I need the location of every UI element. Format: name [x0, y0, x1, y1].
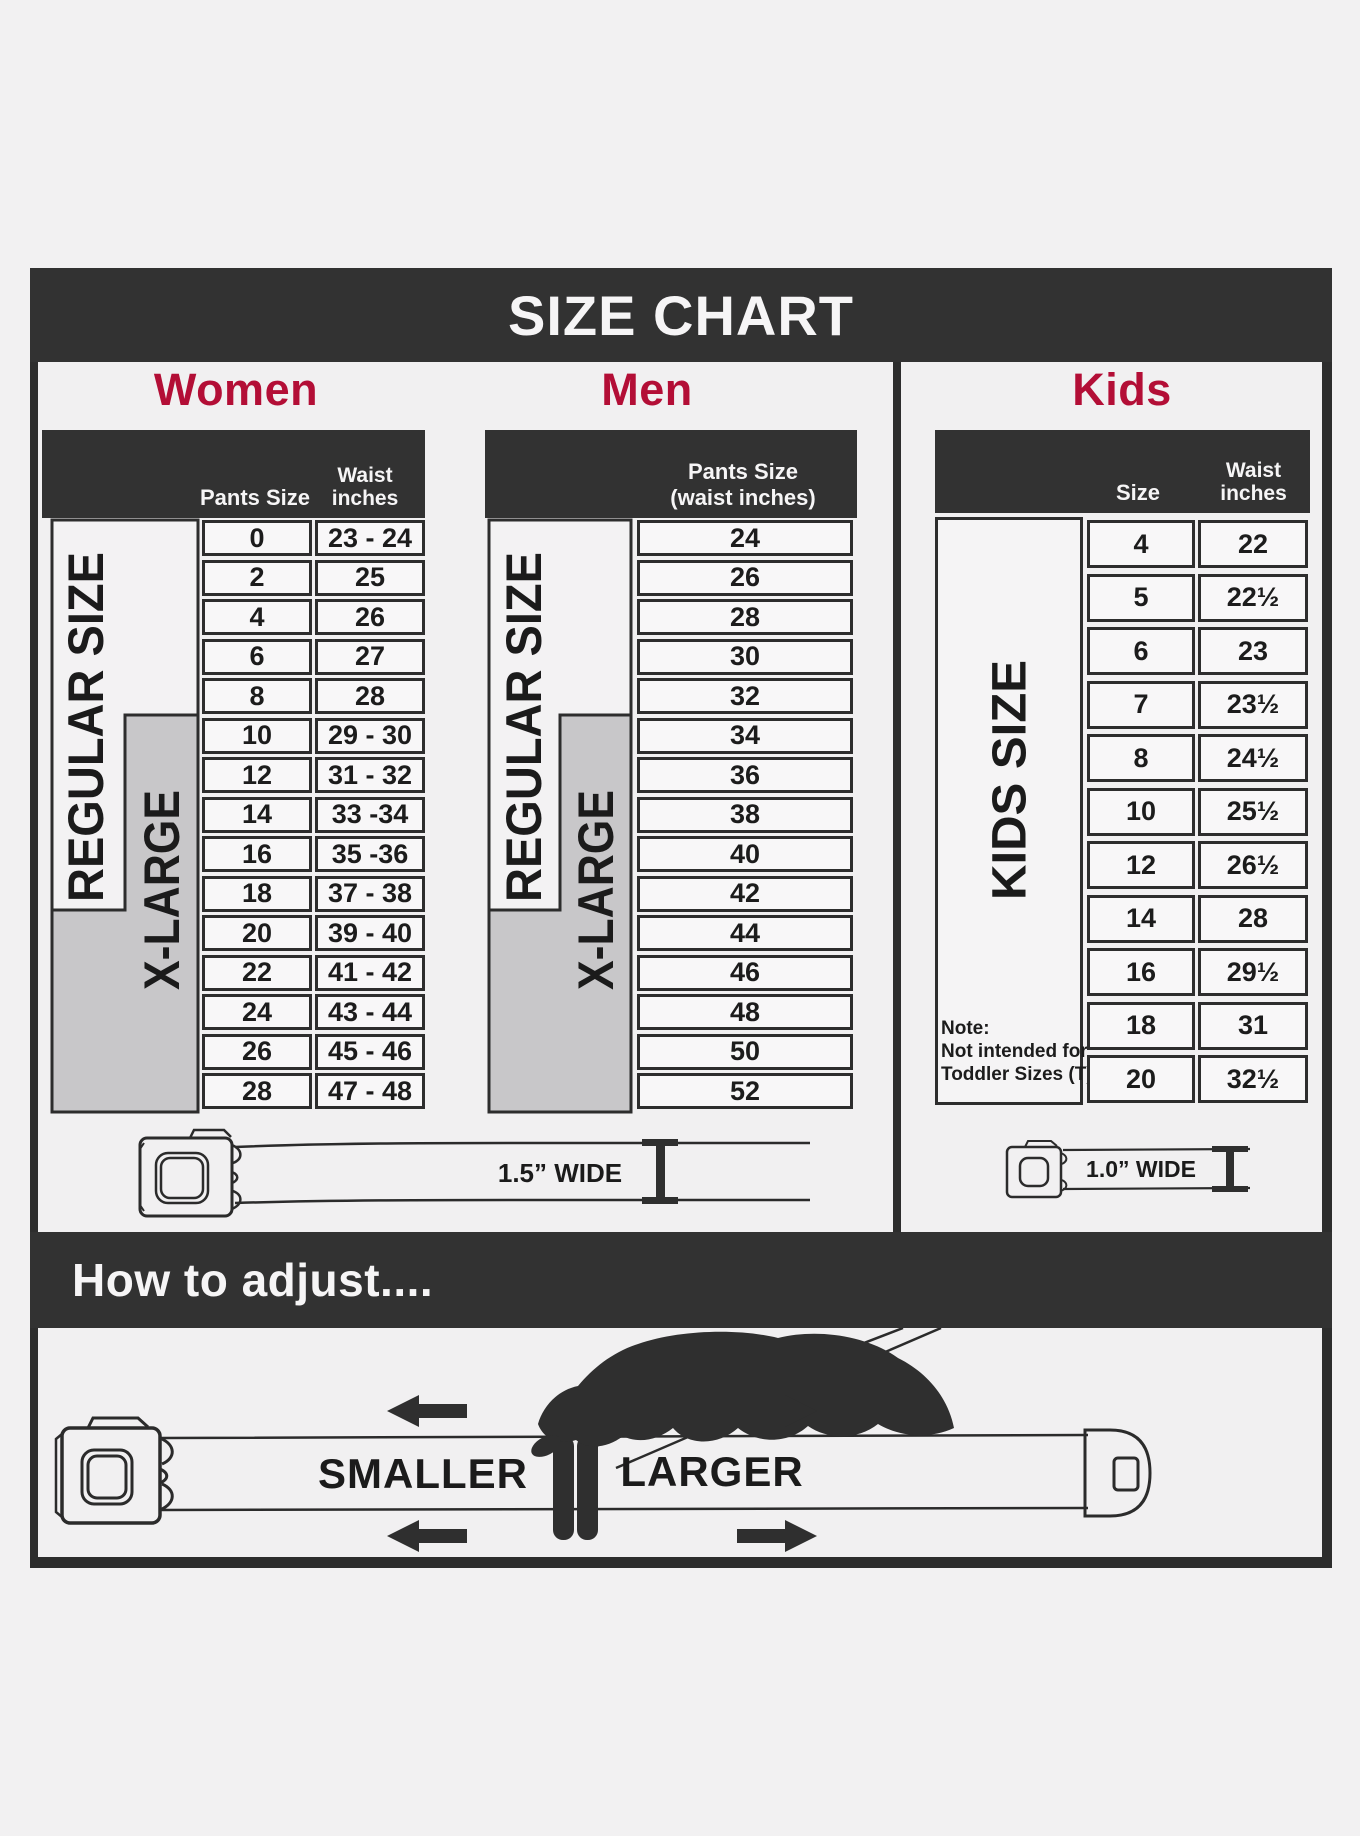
women-col-waist-header: Waistinches — [310, 464, 420, 511]
howto-heading: How to adjust.... — [30, 1253, 433, 1307]
men-xlarge-label: X-LARGE — [568, 790, 624, 990]
pants-size-cell: 48 — [637, 994, 853, 1030]
table-row: 28 — [637, 599, 853, 635]
table-row: 828 — [202, 678, 425, 714]
waist-cell: 35 -36 — [315, 836, 425, 872]
waist-cell: 26 — [315, 599, 425, 635]
table-row: 32 — [637, 678, 853, 714]
pants-size-cell: 14 — [202, 797, 312, 833]
belt-tip-icon — [1085, 1430, 1150, 1516]
width-marker-icon — [1212, 1146, 1248, 1192]
width-marker-icon — [642, 1139, 678, 1204]
buckle-slot — [1020, 1158, 1048, 1186]
pants-size-cell: 20 — [202, 915, 312, 951]
larger-label: LARGER — [620, 1448, 803, 1495]
pants-size-cell: 4 — [202, 599, 312, 635]
belt-strap-top-line — [235, 1143, 810, 1147]
size-cell: 6 — [1087, 627, 1195, 675]
waist-cell: 43 - 44 — [315, 994, 425, 1030]
section-divider — [893, 362, 901, 1232]
pants-size-cell: 36 — [637, 757, 853, 793]
buckle-slot — [161, 1158, 203, 1198]
belt-adjuster — [553, 1436, 598, 1540]
title-bar: SIZE CHART — [30, 268, 1332, 362]
waist-cell: 23 — [1198, 627, 1308, 675]
waist-cell: 31 - 32 — [315, 757, 425, 793]
men-regular-size-label: REGULAR SIZE — [496, 552, 552, 902]
size-cell: 12 — [1087, 841, 1195, 889]
pants-size-cell: 44 — [637, 915, 853, 951]
kids-size-label: KIDS SIZE — [984, 660, 1037, 900]
smaller-label: SMALLER — [318, 1450, 528, 1497]
pants-size-cell: 8 — [202, 678, 312, 714]
table-row: 627 — [202, 639, 425, 675]
women-table-header: Pants Size Waistinches — [42, 430, 425, 518]
waist-cell: 45 - 46 — [315, 1034, 425, 1070]
pants-size-cell: 10 — [202, 718, 312, 754]
pants-size-cell: 2 — [202, 560, 312, 596]
table-row: 1029 - 30 — [202, 718, 425, 754]
adult-belt-illustration: 1.5” WIDE — [130, 1125, 890, 1225]
men-size-category-shapes: REGULAR SIZE X-LARGE — [487, 518, 633, 1115]
table-row: 023 - 24 — [202, 520, 425, 556]
table-row: 48 — [637, 994, 853, 1030]
table-row: 1635 -36 — [202, 836, 425, 872]
size-chart-infographic: SIZE CHART Women Men Kids Pants Size Wai… — [0, 0, 1360, 1836]
arrow-right-icon — [737, 1520, 817, 1552]
pants-size-cell: 0 — [202, 520, 312, 556]
table-row: 44 — [637, 915, 853, 951]
adult-belt-width-label: 1.5” WIDE — [498, 1158, 622, 1188]
table-row: 46 — [637, 955, 853, 991]
frame-border-right — [1322, 362, 1332, 1568]
kids-col-size-header: Size — [1083, 480, 1193, 506]
adjust-illustration: SMALLER LARGER — [38, 1328, 1322, 1557]
size-cell: 16 — [1087, 948, 1195, 996]
belt-strap-bottom-line — [235, 1200, 810, 1203]
belt-buckle-icon — [140, 1138, 232, 1216]
pants-size-cell: 32 — [637, 678, 853, 714]
pants-size-cell: 16 — [202, 836, 312, 872]
pants-size-cell: 26 — [202, 1034, 312, 1070]
table-row: 42 — [637, 876, 853, 912]
women-size-category-shapes: REGULAR SIZE X-LARGE — [42, 518, 200, 1115]
kids-note: Note: Not intended for Toddler Sizes (T) — [941, 1018, 1083, 1086]
women-heading: Women — [126, 364, 346, 416]
men-col-pants-size-header: Pants Size(waist inches) — [633, 459, 853, 511]
table-row: 824½ — [1087, 734, 1308, 782]
table-row: 723½ — [1087, 681, 1308, 729]
kids-table-header: Size Waistinches — [935, 430, 1310, 513]
page-title: SIZE CHART — [508, 283, 854, 348]
pants-size-cell: 18 — [202, 876, 312, 912]
size-cell: 14 — [1087, 895, 1195, 943]
waist-cell: 29 - 30 — [315, 718, 425, 754]
table-row: 1433 -34 — [202, 797, 425, 833]
size-cell: 20 — [1087, 1055, 1195, 1103]
waist-cell: 29½ — [1198, 948, 1308, 996]
table-row: 1226½ — [1087, 841, 1308, 889]
table-row: 2032½ — [1087, 1055, 1308, 1103]
table-row: 1231 - 32 — [202, 757, 425, 793]
waist-cell: 26½ — [1198, 841, 1308, 889]
pants-size-cell: 12 — [202, 757, 312, 793]
table-row: 2039 - 40 — [202, 915, 425, 951]
table-row: 623 — [1087, 627, 1308, 675]
waist-cell: 37 - 38 — [315, 876, 425, 912]
table-row: 34 — [637, 718, 853, 754]
table-row: 422 — [1087, 520, 1308, 568]
waist-cell: 31 — [1198, 1002, 1308, 1050]
men-table-header: Pants Size(waist inches) — [485, 430, 857, 518]
frame-border-left — [30, 362, 38, 1568]
waist-cell: 25 — [315, 560, 425, 596]
waist-cell: 39 - 40 — [315, 915, 425, 951]
pants-size-cell: 46 — [637, 955, 853, 991]
belt-buckle-icon — [1007, 1147, 1061, 1197]
pants-size-cell: 42 — [637, 876, 853, 912]
waist-cell: 22 — [1198, 520, 1308, 568]
waist-cell: 22½ — [1198, 574, 1308, 622]
kids-col-waist-header: Waistinches — [1197, 459, 1310, 506]
table-row: 2443 - 44 — [202, 994, 425, 1030]
women-col-pants-size-header: Pants Size — [198, 485, 312, 511]
men-heading: Men — [537, 364, 757, 416]
pants-size-cell: 26 — [637, 560, 853, 596]
table-row: 40 — [637, 836, 853, 872]
pants-size-cell: 40 — [637, 836, 853, 872]
table-row: 1629½ — [1087, 948, 1308, 996]
waist-cell: 25½ — [1198, 788, 1308, 836]
table-row: 36 — [637, 757, 853, 793]
size-cell: 5 — [1087, 574, 1195, 622]
pants-size-cell: 6 — [202, 639, 312, 675]
kids-size-label-svg: KIDS SIZE — [938, 520, 1080, 1102]
pants-size-cell: 28 — [202, 1073, 312, 1109]
size-cell: 8 — [1087, 734, 1195, 782]
women-xlarge-label: X-LARGE — [134, 790, 190, 990]
pants-size-cell: 30 — [637, 639, 853, 675]
table-row: 50 — [637, 1034, 853, 1070]
kids-size-label-box: KIDS SIZE — [935, 517, 1083, 1105]
waist-cell: 28 — [1198, 895, 1308, 943]
table-row: 1831 — [1087, 1002, 1308, 1050]
buckle-slot — [88, 1456, 126, 1498]
table-row: 2645 - 46 — [202, 1034, 425, 1070]
kids-heading: Kids — [1012, 364, 1232, 416]
waist-cell: 23½ — [1198, 681, 1308, 729]
kids-belt-illustration: 1.0” WIDE — [995, 1135, 1265, 1205]
women-size-rows: 023 - 242254266278281029 - 301231 - 3214… — [202, 520, 425, 1109]
size-cell: 10 — [1087, 788, 1195, 836]
frame-border-bottom — [30, 1557, 1332, 1568]
pants-size-cell: 24 — [637, 520, 853, 556]
belt-tip-slot — [1114, 1458, 1138, 1490]
pants-size-cell: 52 — [637, 1073, 853, 1109]
buckle-strap-hooks — [160, 1438, 172, 1510]
table-row: 24 — [637, 520, 853, 556]
waist-cell: 41 - 42 — [315, 955, 425, 991]
pants-size-cell: 22 — [202, 955, 312, 991]
women-regular-size-label: REGULAR SIZE — [58, 552, 114, 902]
waist-cell: 24½ — [1198, 734, 1308, 782]
table-row: 1837 - 38 — [202, 876, 425, 912]
waist-cell: 33 -34 — [315, 797, 425, 833]
kids-belt-width-label: 1.0” WIDE — [1086, 1156, 1196, 1182]
table-row: 2241 - 42 — [202, 955, 425, 991]
kids-size-rows: 422522½623723½824½1025½1226½14281629½183… — [1087, 520, 1308, 1103]
pants-size-cell: 24 — [202, 994, 312, 1030]
table-row: 2847 - 48 — [202, 1073, 425, 1109]
arrow-left-icon — [387, 1395, 467, 1427]
pants-size-cell: 34 — [637, 718, 853, 754]
table-row: 426 — [202, 599, 425, 635]
pants-size-cell: 38 — [637, 797, 853, 833]
howto-bar: How to adjust.... — [30, 1232, 1332, 1328]
waist-cell: 28 — [315, 678, 425, 714]
men-size-rows: 242628303234363840424446485052 — [637, 520, 853, 1109]
size-cell: 4 — [1087, 520, 1195, 568]
size-cell: 18 — [1087, 1002, 1195, 1050]
table-row: 30 — [637, 639, 853, 675]
size-cell: 7 — [1087, 681, 1195, 729]
table-row: 225 — [202, 560, 425, 596]
table-row: 522½ — [1087, 574, 1308, 622]
waist-cell: 23 - 24 — [315, 520, 425, 556]
waist-cell: 27 — [315, 639, 425, 675]
belt-buckle-icon — [62, 1428, 160, 1523]
table-row: 52 — [637, 1073, 853, 1109]
waist-cell: 47 - 48 — [315, 1073, 425, 1109]
table-row: 38 — [637, 797, 853, 833]
table-row: 26 — [637, 560, 853, 596]
table-row: 1428 — [1087, 895, 1308, 943]
arrow-left-icon — [387, 1520, 467, 1552]
table-row: 1025½ — [1087, 788, 1308, 836]
pants-size-cell: 50 — [637, 1034, 853, 1070]
waist-cell: 32½ — [1198, 1055, 1308, 1103]
pants-size-cell: 28 — [637, 599, 853, 635]
